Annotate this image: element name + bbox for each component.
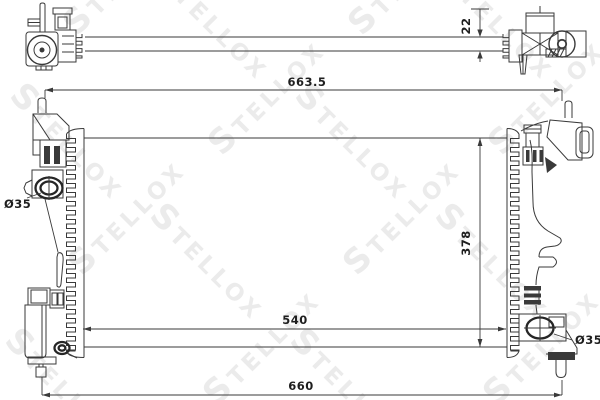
dim-label-overall-width-bottom: 660 — [288, 379, 314, 393]
top-view-left-tank — [26, 3, 82, 70]
top-view-left-crimp — [58, 30, 82, 62]
top-view-core-band — [85, 37, 503, 51]
dim-label-right-port: Ø35 — [575, 333, 600, 347]
dim-label-overall-width-top: 663.5 — [288, 75, 327, 89]
dim-label-left-port: Ø35 — [4, 197, 31, 211]
left-inlet-port — [24, 170, 63, 252]
drawing-page: STELLOX STELLOX STELLOX STELLOX STELLOX … — [0, 0, 600, 400]
dim-core-thickness: 22 — [459, 9, 489, 62]
dim-label-core-width: 540 — [282, 313, 308, 327]
right-outlet-port — [519, 314, 577, 378]
dim-core-width: 540 — [83, 313, 506, 331]
dim-overall-width-top: 663.5 — [45, 75, 562, 101]
left-top-bracket — [33, 98, 69, 167]
top-view: 22 — [26, 3, 586, 74]
left-lower-assembly — [25, 253, 77, 377]
radiator-technical-drawing: 22 — [0, 0, 600, 400]
top-view-right-crimp — [503, 34, 509, 58]
dim-label-core-thickness: 22 — [459, 17, 473, 34]
top-view-right-tank — [503, 6, 586, 74]
right-crimp-band — [511, 134, 520, 351]
dim-overall-width-bottom: 660 — [42, 377, 562, 397]
dim-height: 378 — [459, 138, 482, 347]
dim-label-height: 378 — [459, 230, 473, 256]
left-crimp-band — [67, 134, 76, 351]
front-view: Ø35 — [4, 75, 600, 397]
